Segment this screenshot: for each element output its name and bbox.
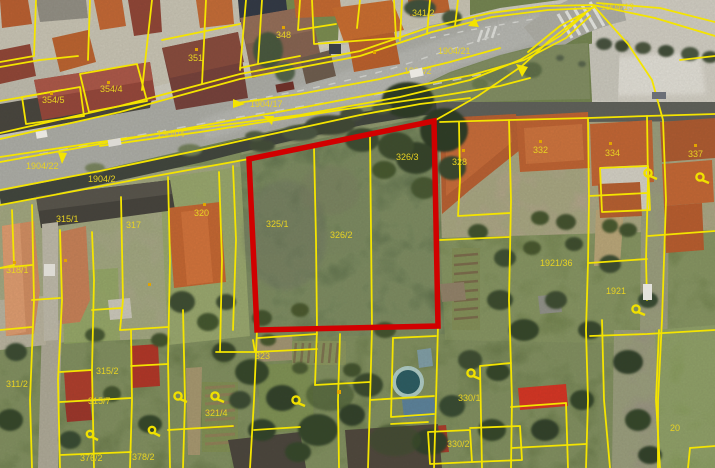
svg-text:378/2: 378/2 <box>132 452 155 462</box>
svg-text:351: 351 <box>188 53 203 63</box>
svg-text:332: 332 <box>533 145 548 155</box>
svg-text:20: 20 <box>670 423 680 433</box>
svg-text:315/7: 315/7 <box>88 396 111 406</box>
svg-text:321/4: 321/4 <box>205 408 228 418</box>
svg-text:1904/2: 1904/2 <box>88 174 116 184</box>
svg-text:326/2: 326/2 <box>330 230 353 240</box>
svg-text:1921/36: 1921/36 <box>540 258 573 268</box>
svg-text:317: 317 <box>126 220 141 230</box>
svg-text:315/1: 315/1 <box>56 214 79 224</box>
svg-text:320: 320 <box>194 208 209 218</box>
svg-text:354/5: 354/5 <box>42 95 65 105</box>
svg-text:326/3: 326/3 <box>396 152 419 162</box>
svg-text:323: 323 <box>255 351 270 361</box>
svg-text:337: 337 <box>688 149 703 159</box>
svg-text:1904/17: 1904/17 <box>250 99 283 109</box>
svg-text:1904/4: 1904/4 <box>157 129 185 139</box>
svg-text:348: 348 <box>276 30 291 40</box>
svg-text:325/1: 325/1 <box>266 219 289 229</box>
svg-text:1904/13: 1904/13 <box>601 2 634 12</box>
svg-text:328: 328 <box>452 157 467 167</box>
svg-text:330/1: 330/1 <box>458 393 481 403</box>
svg-text:376/2: 376/2 <box>80 453 103 463</box>
svg-text:1904/21: 1904/21 <box>438 46 471 56</box>
svg-text:1921: 1921 <box>606 286 626 296</box>
svg-text:341/2: 341/2 <box>412 8 435 18</box>
svg-text:354/4: 354/4 <box>100 84 123 94</box>
svg-text:315/2: 315/2 <box>96 366 119 376</box>
svg-text:330/2: 330/2 <box>447 439 470 449</box>
svg-text:318/1: 318/1 <box>6 265 29 275</box>
svg-text:334: 334 <box>605 148 620 158</box>
svg-text:311/2: 311/2 <box>6 379 28 389</box>
svg-text:1904/22: 1904/22 <box>26 161 59 171</box>
